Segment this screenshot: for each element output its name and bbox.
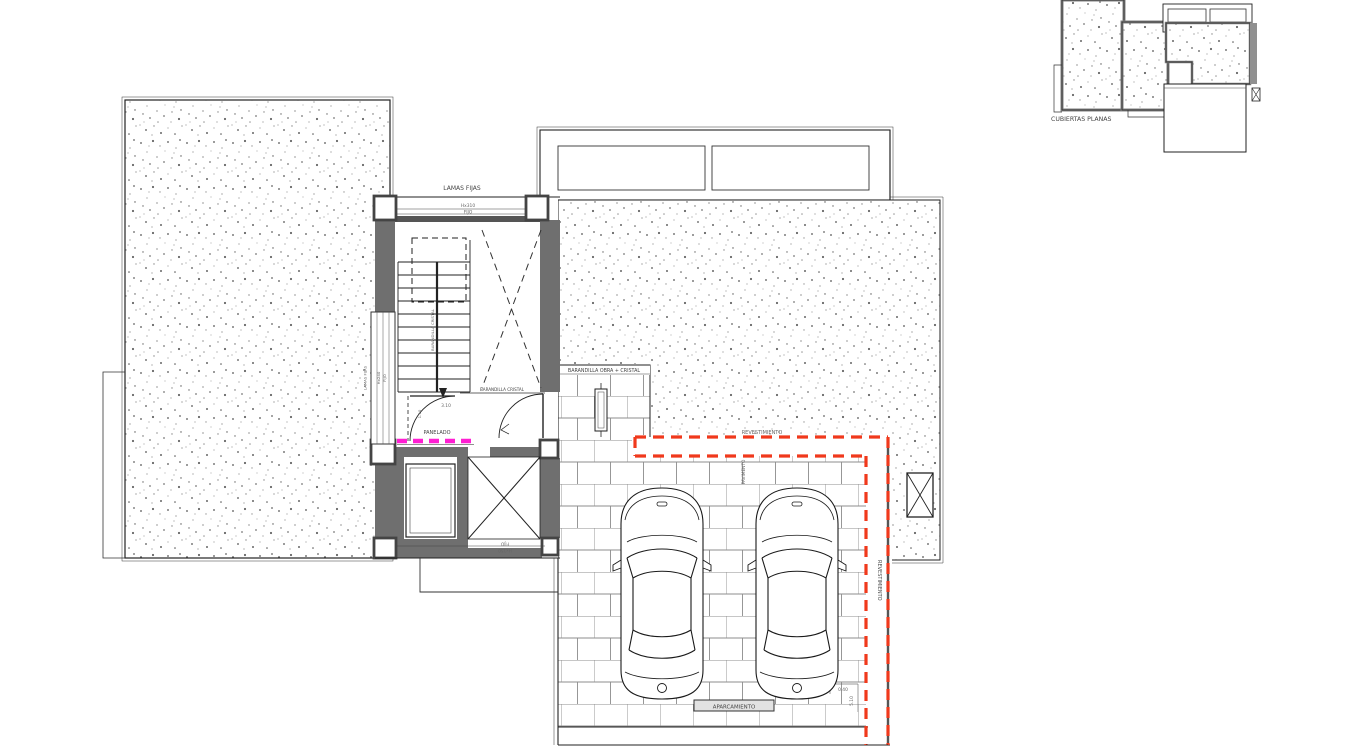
panelado-label: PANELADO	[423, 430, 450, 436]
key-plan-label: CUBIERTAS PLANAS	[1051, 116, 1112, 123]
cad-drawing: BARANDILLA OBRA + CRISTAL PAVIMENTO REVE…	[0, 0, 1350, 748]
parking-label: APARCAMIENTO	[713, 705, 755, 711]
lift-window-fijo: FIJO	[500, 542, 509, 547]
lamas-fijas-left-label: LAMAS FIJAS	[363, 365, 368, 390]
window-left-fijo: FIJO	[382, 374, 387, 382]
lamas-fijas-top-label: LAMAS FIJAS	[443, 185, 481, 192]
right-building: BARANDILLA OBRA + CRISTAL PAVIMENTO REVE…	[537, 127, 943, 745]
car-left	[613, 488, 711, 699]
barandilla-landing-label: BARANDILLA CRISTAL	[480, 387, 525, 392]
floor-plan-canvas: BARANDILLA OBRA + CRISTAL PAVIMENTO REVE…	[0, 0, 1350, 748]
dim-door-height: 1.10	[417, 409, 422, 418]
car-right	[748, 488, 846, 699]
lift-window-height: Hx150	[498, 548, 512, 553]
dim-510: 5.10	[849, 696, 855, 706]
terrace-edge-line	[103, 372, 125, 558]
key-skylight-left	[1168, 9, 1206, 22]
stair-core: LAMAS FIJAS Hx310 FIJO	[363, 185, 561, 592]
downpipe	[595, 383, 607, 437]
parking-label-box: APARCAMIENTO	[694, 700, 774, 711]
dim-040: 0.40	[838, 687, 848, 693]
pavimento-label: PAVIMENTO	[741, 459, 747, 484]
revestimiento-side-label: REVESTIMIENTO	[876, 560, 882, 601]
dim-door-width: 3.10	[441, 403, 451, 409]
skylight-left	[558, 146, 705, 190]
window-left-height: Hx240	[376, 371, 381, 384]
window-top-fijo: FIJO	[464, 210, 473, 216]
lift-shaft	[406, 464, 455, 537]
key-chimney	[1252, 88, 1260, 101]
chimney-box	[907, 473, 933, 517]
lower-landing-outline	[420, 558, 558, 592]
revestimiento-top-label: REVESTIMIENTO	[742, 430, 783, 436]
window-top-height: Hx310	[461, 203, 475, 209]
barandilla-obra-label: BARANDILLA OBRA + CRISTAL	[568, 368, 640, 374]
skylight-right	[712, 146, 869, 190]
key-plan: CUBIERTAS PLANAS	[1051, 0, 1260, 152]
window-frame-band	[395, 216, 540, 222]
barandilla-stair-label: BARANDILLA CRISTAL	[430, 308, 435, 351]
key-skylight-right	[1210, 9, 1246, 22]
left-roof-terrace	[103, 97, 393, 561]
